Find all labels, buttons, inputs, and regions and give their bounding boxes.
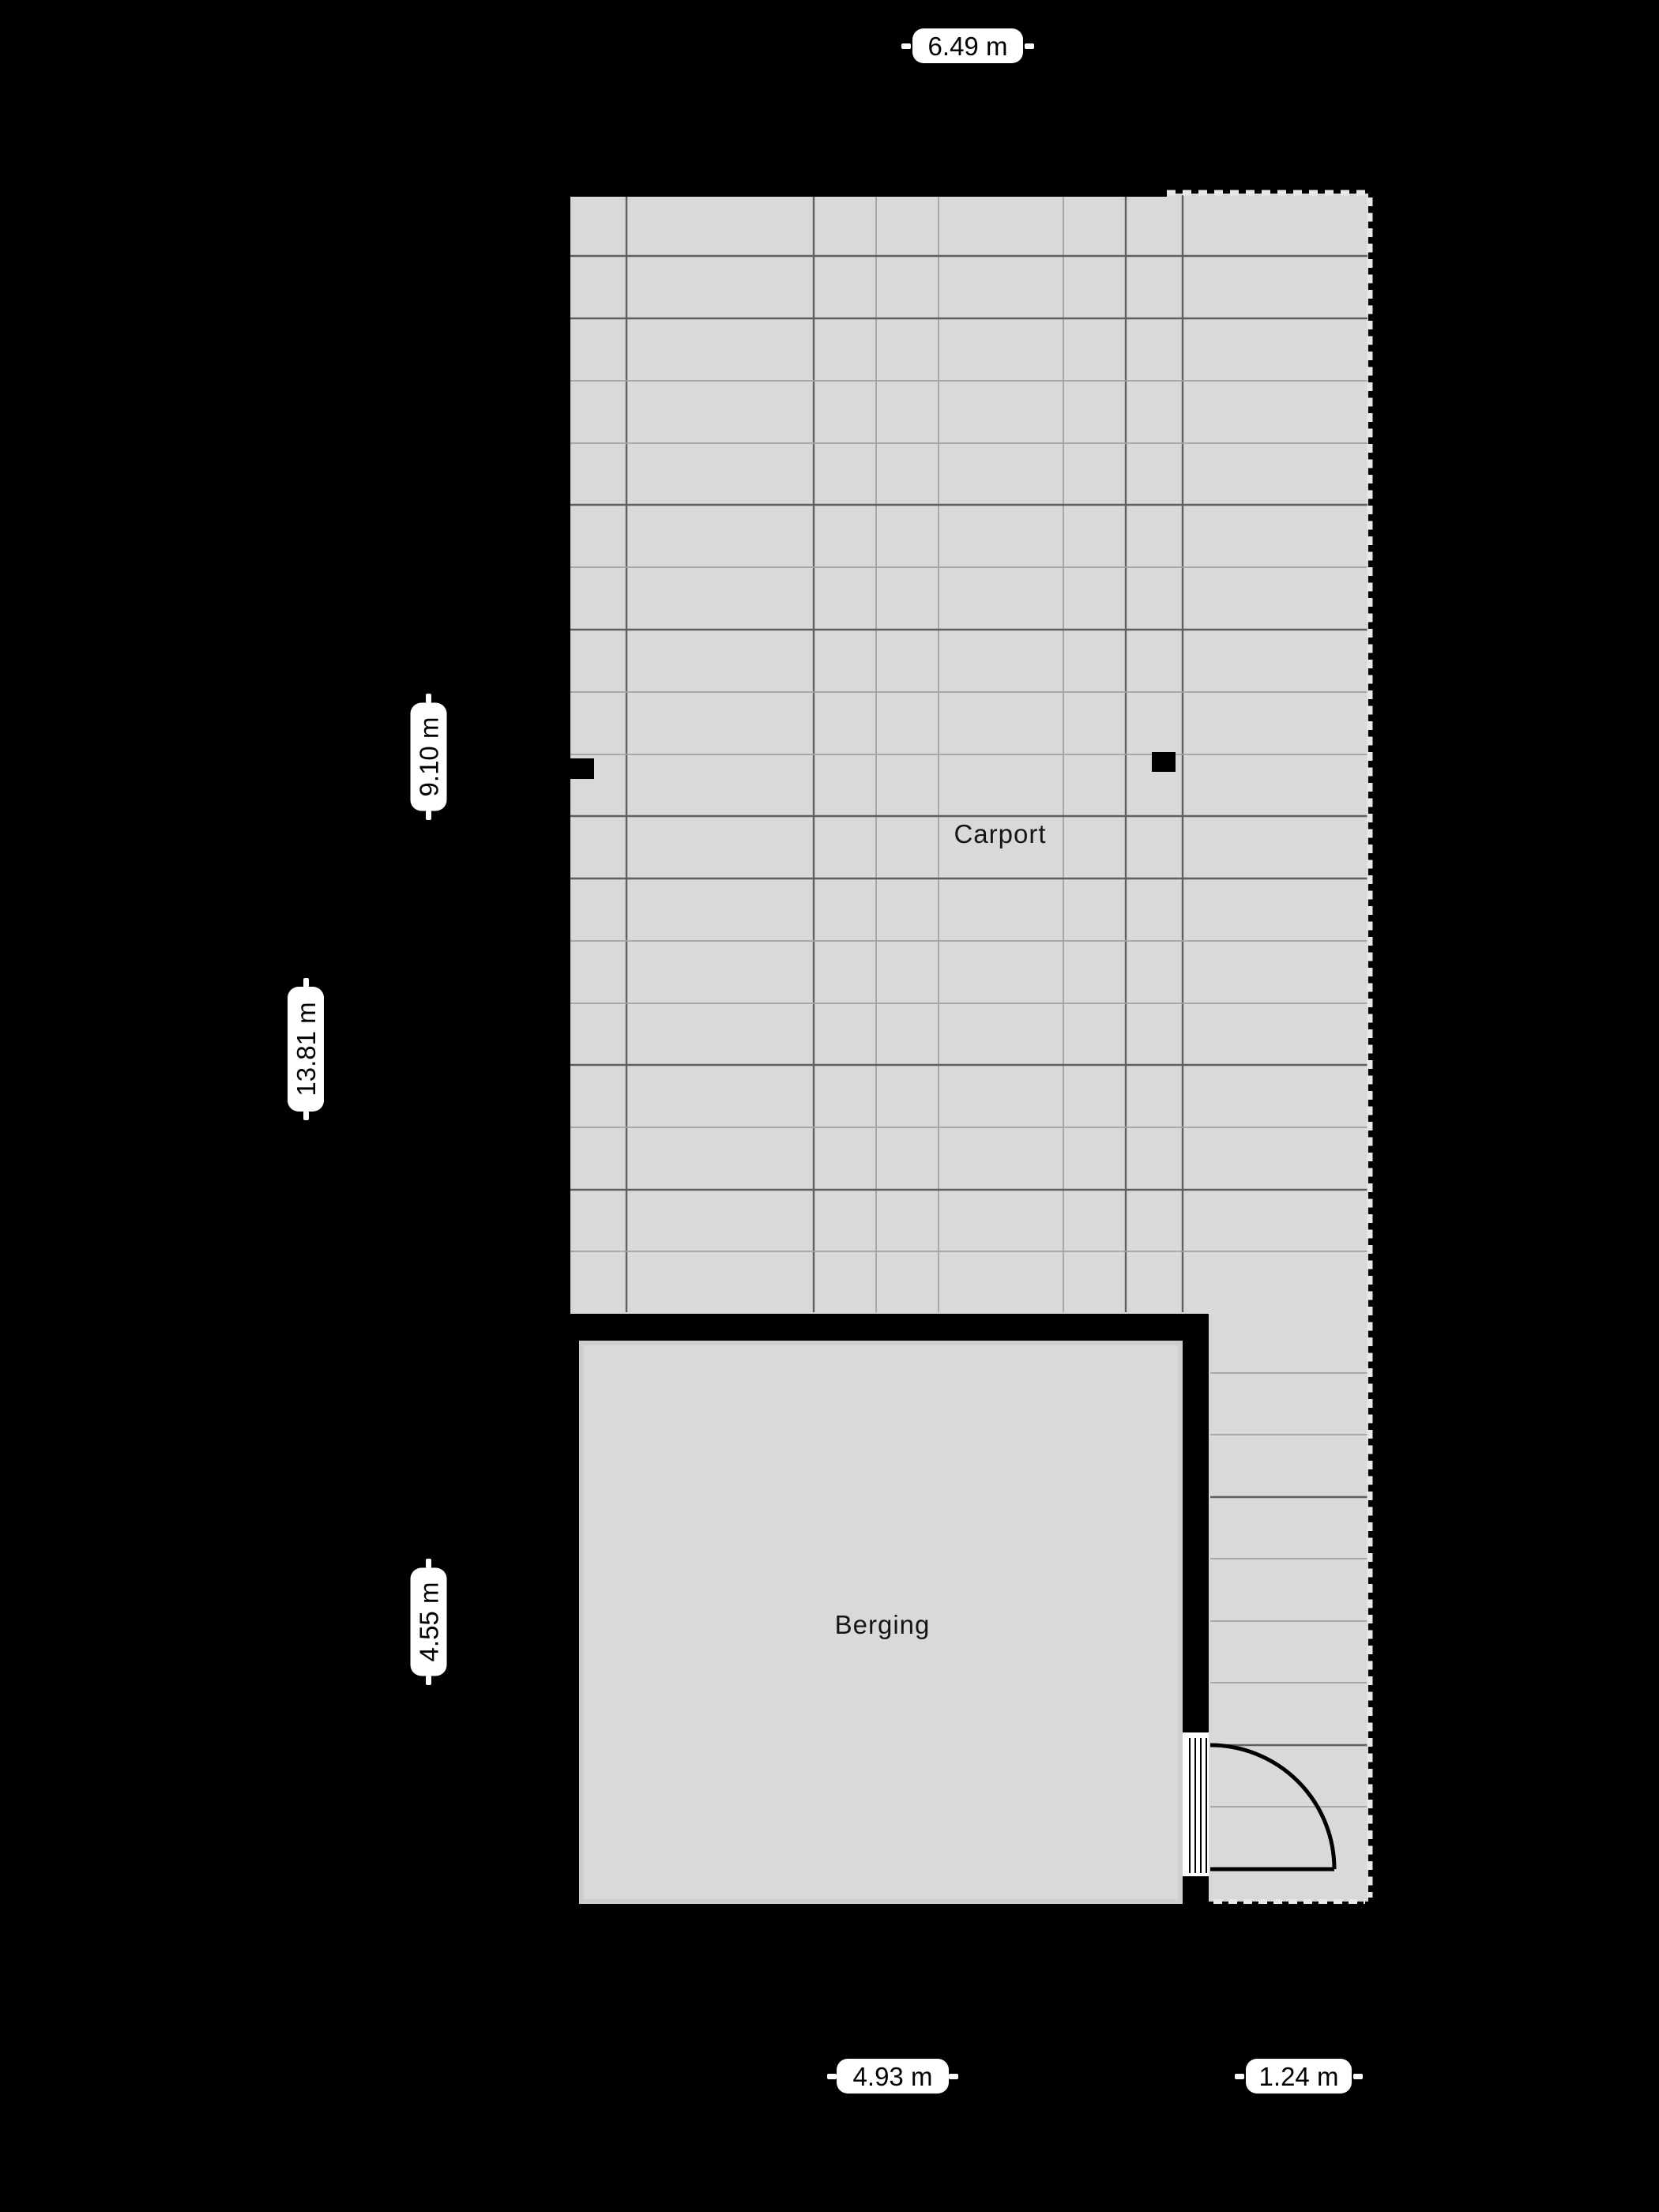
dim-tick [949,2074,958,2079]
dim-tick [1025,43,1034,49]
dimension-label-carport-height: 9.10 m [411,703,447,811]
berging-right-wall-upper [1183,1314,1209,1732]
carport-post-right [1152,752,1176,772]
berging-right-wall-lower [1183,1876,1209,1904]
dim-tick [426,1676,431,1685]
dim-tick [827,2074,837,2079]
dimension-label-berging-width: 4.93 m [837,2059,949,2093]
berging-left-wall [564,1341,579,1918]
dim-tick [1235,2074,1244,2079]
wall-left-edge [564,191,570,1314]
dim-tick [426,811,431,820]
floorplan-drawing [0,0,1659,2212]
floorplan-canvas: Carport Berging 6.49 m 9.10 m 13.81 m 4.… [0,0,1659,2212]
room-label-berging: Berging [835,1610,931,1640]
dim-tick [1353,2074,1363,2079]
dimension-label-berging-height: 4.55 m [411,1568,447,1676]
dim-tick [303,1111,309,1120]
dimension-label-total-height: 13.81 m [288,987,324,1112]
dim-tick [426,1559,431,1568]
berging-bottom-wall [564,1904,1209,1920]
dimension-label-top-width: 6.49 m [912,28,1023,63]
dim-tick [426,694,431,703]
dim-tick [303,978,309,987]
dimension-label-strip-width: 1.24 m [1246,2059,1352,2093]
room-label-carport: Carport [954,819,1046,849]
dim-tick [901,43,911,49]
berging-top-wall [564,1314,1209,1341]
carport-post-left [566,758,594,779]
side-strip-floor [1209,1314,1368,1902]
wall-top-edge [564,191,1167,197]
carport-floor [564,194,1368,1314]
